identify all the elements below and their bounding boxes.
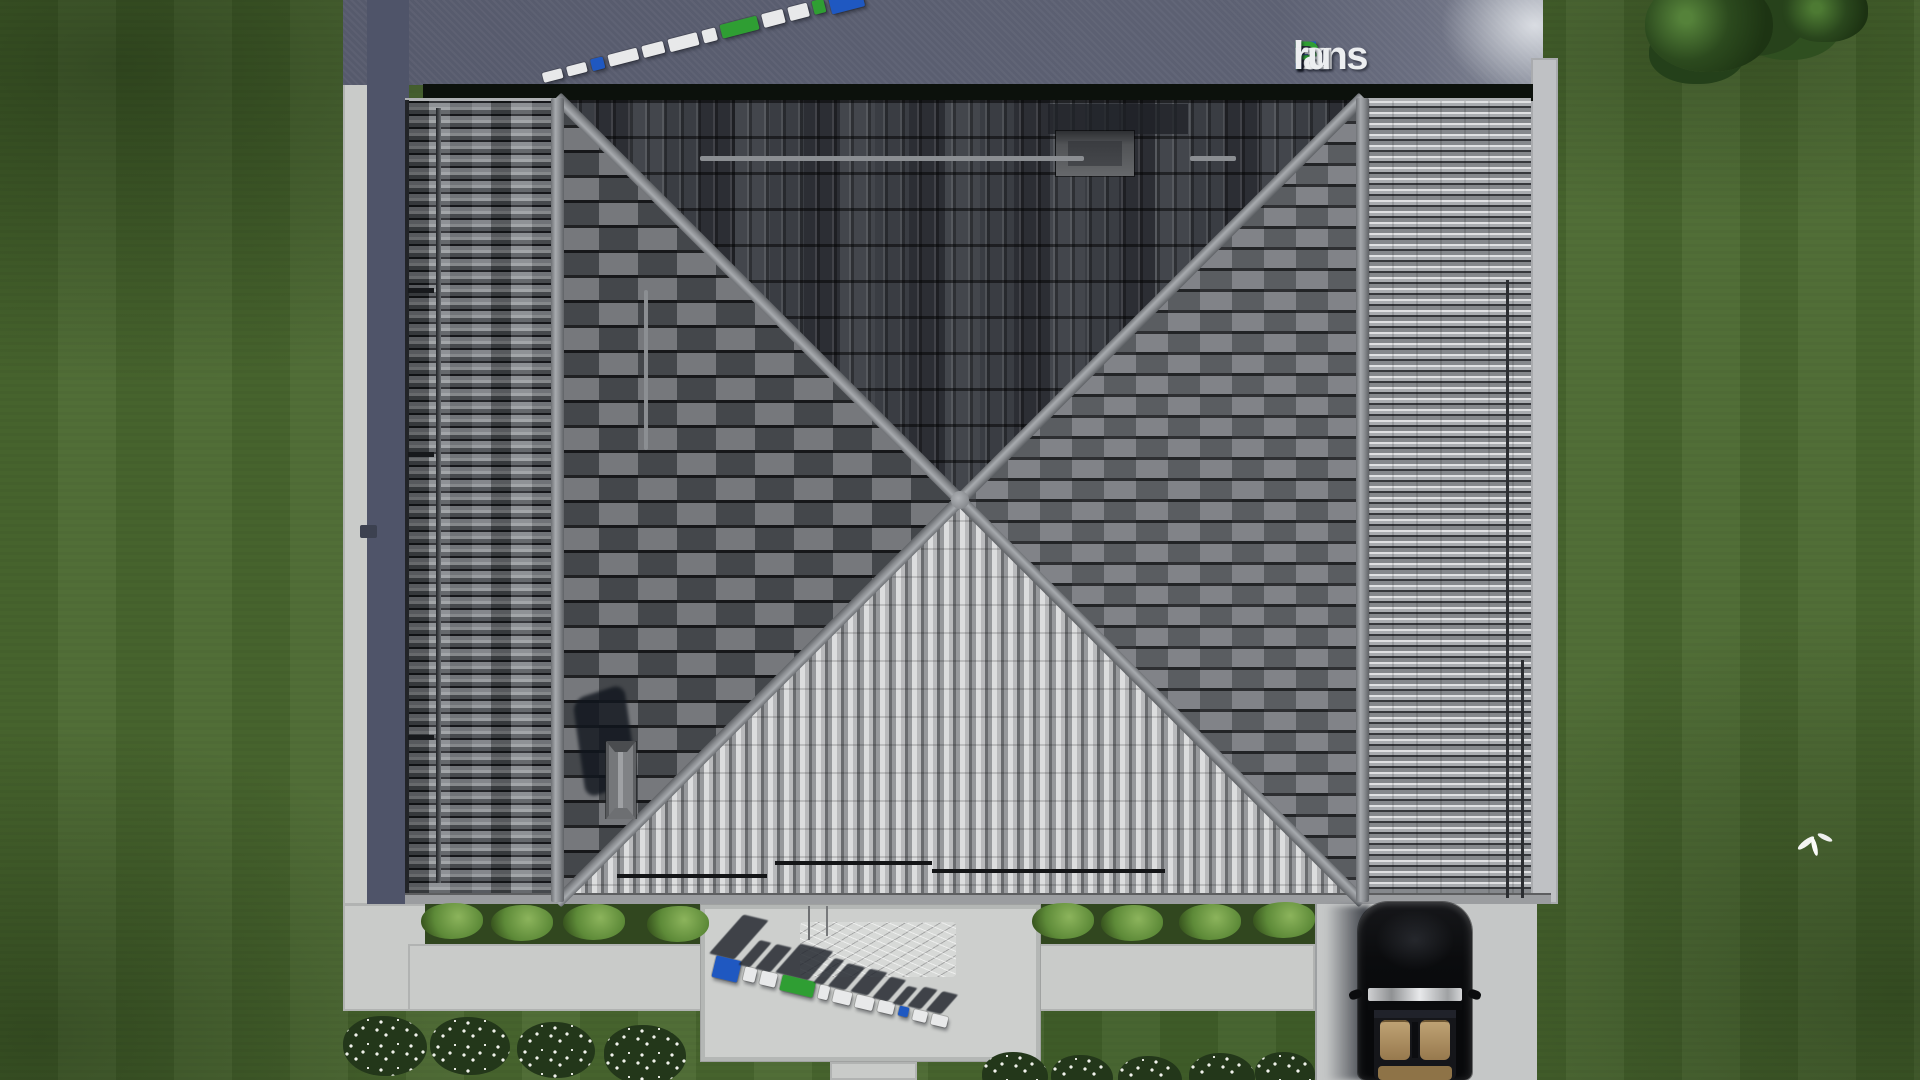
fixplans-logo-segment: ru bbox=[1293, 34, 1330, 79]
skylight bbox=[1056, 131, 1134, 176]
snow-guard bbox=[775, 861, 932, 865]
aerial-house-render: FixPlans.ru bbox=[0, 0, 1920, 1080]
flower-bush bbox=[517, 1022, 595, 1078]
roof-seam bbox=[1506, 280, 1509, 898]
car-rear-bench bbox=[1378, 1066, 1452, 1080]
car-seat-left bbox=[1380, 1020, 1410, 1060]
car-windshield bbox=[1366, 986, 1464, 1003]
car-hood-shine bbox=[1376, 910, 1454, 970]
concrete-joint bbox=[808, 906, 810, 940]
snow-rail bbox=[644, 290, 648, 450]
bird-wing bbox=[1817, 832, 1834, 844]
flower-bush bbox=[604, 1025, 686, 1080]
pavement-right-strip bbox=[1531, 58, 1558, 904]
hedge-bush bbox=[421, 903, 483, 939]
snow-guard bbox=[932, 869, 1165, 873]
hedge-bush bbox=[647, 906, 709, 942]
hedge-bush bbox=[1032, 903, 1094, 939]
roof-strip-west bbox=[409, 101, 556, 893]
roof-bracket bbox=[408, 452, 434, 457]
roof-rail-west-strip bbox=[436, 108, 441, 883]
hedge-bush bbox=[1253, 902, 1315, 938]
hedge-bush bbox=[491, 905, 553, 941]
car-center-console bbox=[1412, 1022, 1418, 1058]
ridge-apex-cap bbox=[951, 491, 969, 509]
pavement-lit-corner bbox=[1440, 0, 1543, 85]
snow-rail bbox=[1190, 156, 1236, 161]
car-interior bbox=[1374, 1010, 1456, 1080]
car-dashboard bbox=[1374, 1010, 1456, 1018]
house-shadow-on-path bbox=[367, 0, 409, 904]
car bbox=[1358, 902, 1472, 1080]
flower-bush bbox=[343, 1016, 427, 1076]
concrete-joint bbox=[826, 906, 828, 936]
bird-body bbox=[1810, 837, 1819, 857]
skylight-shade-band bbox=[1048, 104, 1188, 134]
roof-seam bbox=[1521, 660, 1524, 898]
roof-bracket bbox=[408, 288, 434, 293]
roof-bracket bbox=[408, 735, 434, 740]
chimney bbox=[606, 742, 636, 818]
edge-ridge-west bbox=[551, 98, 564, 902]
hedge-bush bbox=[1101, 905, 1163, 941]
car-seat-right bbox=[1420, 1020, 1450, 1060]
snow-guard bbox=[617, 874, 767, 878]
downspout bbox=[360, 525, 377, 538]
flower-bush bbox=[430, 1017, 510, 1075]
hedge-bush bbox=[1179, 904, 1241, 940]
snow-rail bbox=[700, 156, 1084, 161]
skylight-glass bbox=[1068, 141, 1122, 166]
hedge-bush bbox=[563, 904, 625, 940]
edge-ridge-east bbox=[1356, 98, 1369, 902]
bird bbox=[1796, 826, 1840, 866]
walkway-stub bbox=[830, 1062, 917, 1080]
